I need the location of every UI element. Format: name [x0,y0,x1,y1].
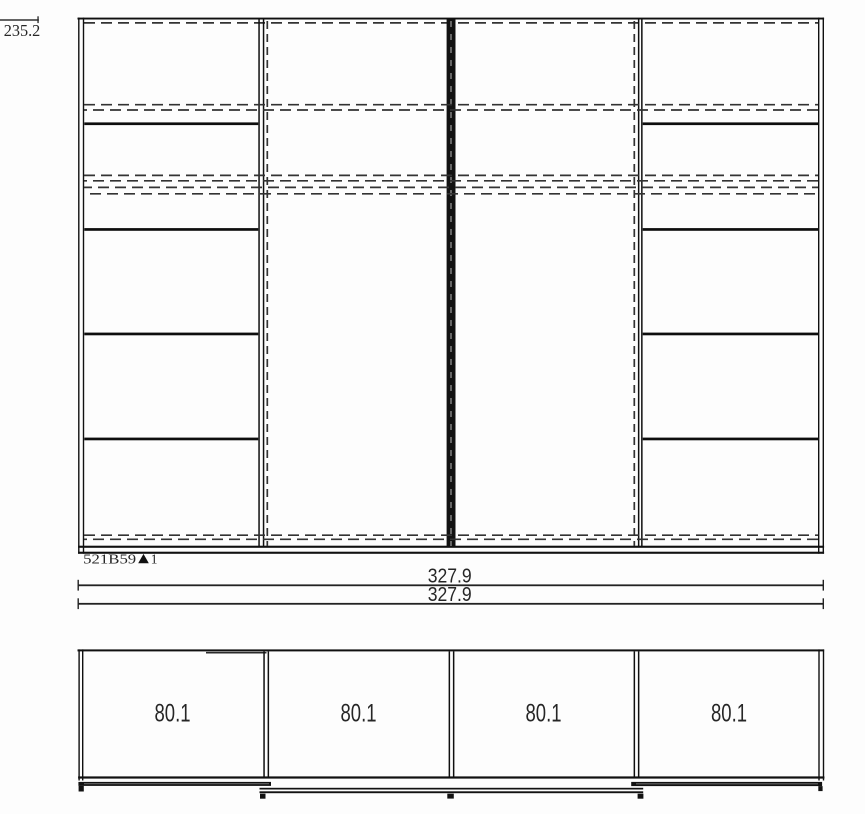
svg-text:1: 1 [151,551,158,566]
svg-text:80.1: 80.1 [341,700,377,728]
svg-text:80.1: 80.1 [711,700,747,728]
svg-text:80.1: 80.1 [155,700,191,728]
svg-text:80.1: 80.1 [526,700,562,728]
svg-text:521B59: 521B59 [83,551,136,566]
svg-text:327.9: 327.9 [428,584,472,606]
svg-text:235.2: 235.2 [4,21,41,40]
